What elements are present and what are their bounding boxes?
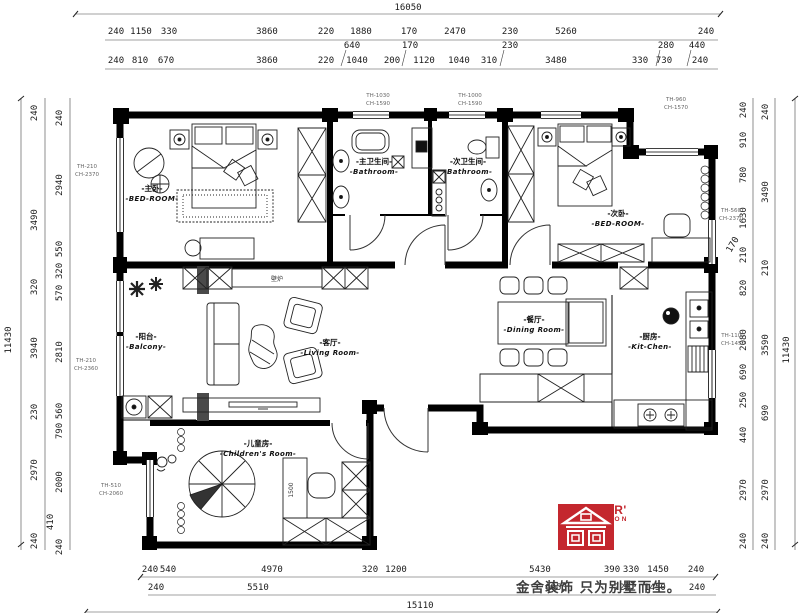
children-room-door <box>332 423 368 459</box>
dim-label: 220 <box>318 56 334 66</box>
annotation: CH-1450 <box>721 341 745 347</box>
dim-label: 730 <box>656 56 672 66</box>
dim-label: 2470 <box>444 27 466 37</box>
dim-label: 240 <box>55 539 65 555</box>
counter <box>480 374 612 402</box>
dim-label: 240 <box>108 56 124 66</box>
dim-label: 240 <box>739 533 749 549</box>
chair <box>500 349 519 366</box>
label-balcony-cn: -阳台- <box>135 331 156 341</box>
toy <box>157 457 167 467</box>
dim-label: 440 <box>739 427 749 443</box>
master-bedroom-furniture <box>134 124 326 259</box>
dim-label: 3590 <box>761 334 771 356</box>
window <box>116 336 124 396</box>
annotation: TH-1100 <box>720 333 745 339</box>
dim-label: 2970 <box>761 479 771 501</box>
kingser-logo-mark <box>558 504 614 550</box>
dim-label: 3480 <box>545 56 567 66</box>
pillow <box>195 127 222 144</box>
dim-label: 1880 <box>350 27 372 37</box>
radiator <box>688 346 708 372</box>
dim-label: 200 <box>384 56 400 66</box>
label-second-bath-cn: -次卫生间- <box>450 156 486 166</box>
dim-label: 1200 <box>385 565 407 575</box>
wardrobe <box>298 128 326 222</box>
window <box>116 138 124 232</box>
window <box>646 148 698 156</box>
tv <box>229 402 297 407</box>
annotation: CH-1590 <box>458 101 482 107</box>
label-kitchen-cn: -厨房- <box>639 331 660 341</box>
desk-chair <box>308 473 335 498</box>
dim-label: 3490 <box>761 181 771 203</box>
label-master-bedroom-en: -BED-ROOM- <box>125 195 178 203</box>
cabinet <box>283 518 370 545</box>
dim-label: 240 <box>698 27 714 37</box>
label-master-bath-cn: -主卫生间- <box>356 156 392 166</box>
annotation: CH-2370 <box>75 172 99 178</box>
annotation: TH-510 <box>100 483 121 489</box>
dim-label: 210 <box>761 260 771 276</box>
dim-label: 2000 <box>55 471 65 493</box>
cabinet <box>620 267 648 289</box>
throw-pillow <box>573 169 593 189</box>
duct <box>392 156 404 168</box>
armchair <box>283 296 323 334</box>
dim-label: 310 <box>481 56 497 66</box>
dim-label: 670 <box>158 56 174 66</box>
sideboard <box>566 299 606 346</box>
annotation: CH-2060 <box>99 491 123 497</box>
annotation: TH-1030 <box>365 93 390 99</box>
annotation: CH-2360 <box>74 366 98 372</box>
dims-top: 16050 240 1150 330 3860 220 1880 170 247… <box>108 3 714 66</box>
dim-label: 790 <box>55 423 65 439</box>
dim-label: 240 <box>689 583 705 593</box>
window <box>449 111 485 119</box>
duct <box>432 170 446 216</box>
dim-label: 1040 <box>448 56 470 66</box>
dim-label: 240 <box>30 105 40 121</box>
desk-chair <box>664 214 690 237</box>
annotation: TH-210 <box>76 164 97 170</box>
figure <box>663 308 679 324</box>
dim-label: 1040 <box>346 56 368 66</box>
dim-label: 320 <box>30 279 40 295</box>
label-living-room-en: -Living Room- <box>300 349 359 357</box>
logo-slogan: 金舍装饰 只为别墅而生。 <box>516 576 681 596</box>
chair <box>524 277 543 294</box>
dim-label: 250 <box>739 392 749 408</box>
second-bedroom-furniture <box>508 124 710 262</box>
dim-label: 560 <box>55 403 65 419</box>
dim-label: 780 <box>739 167 749 183</box>
dim-label: 11430 <box>782 336 792 363</box>
kingser-logo: KINGSER' DECORATION <box>558 504 634 524</box>
plant <box>129 281 145 297</box>
dim-label: 230 <box>502 27 518 37</box>
desk-width-label: 1500 <box>288 482 295 497</box>
windows <box>116 111 716 517</box>
dim-label: 550 <box>55 241 65 257</box>
annotation: CH-1590 <box>366 101 390 107</box>
entry-door-gap <box>384 403 428 413</box>
dim-label: 240 <box>761 104 771 120</box>
dim-label: 240 <box>148 583 164 593</box>
dim-label: 570 <box>55 285 65 301</box>
throw-pillow <box>238 166 258 186</box>
dim-label: 220 <box>318 27 334 37</box>
cabinet <box>342 462 370 518</box>
dim-label: 240 <box>55 110 65 126</box>
entry-door <box>384 408 428 452</box>
dim-label: 230 <box>30 404 40 420</box>
wardrobe <box>508 126 534 222</box>
label-living-room-cn: -客厅- <box>319 337 340 347</box>
dim-label: 3860 <box>256 27 278 37</box>
floor-plan-canvas: 16050 240 1150 330 3860 220 1880 170 247… <box>0 0 800 613</box>
window <box>541 111 581 119</box>
label-second-bedroom-cn: -次卧- <box>607 208 628 218</box>
dim-label: 540 <box>160 565 176 575</box>
dim-label: 1450 <box>647 565 669 575</box>
label-children-room-en: -Children's Room- <box>220 450 296 458</box>
dim-label: 1120 <box>413 56 435 66</box>
label-second-bedroom-en: -BED-ROOM- <box>591 220 644 228</box>
dim-label: 2970 <box>739 479 749 501</box>
pillow <box>560 126 584 142</box>
dim-label: 3490 <box>30 209 40 231</box>
tent-shade <box>190 484 222 509</box>
dim-label: 280 <box>658 41 674 51</box>
dim-label: 170 <box>402 41 418 51</box>
dim-label: 5510 <box>247 583 269 593</box>
annotation: TH-960 <box>665 97 686 103</box>
dim-label: 330 <box>161 27 177 37</box>
dim-label: 3940 <box>30 337 40 359</box>
dim-label: 240 <box>142 565 158 575</box>
dim-label: 1150 <box>130 27 152 37</box>
annotation: CH-2370 <box>719 216 743 222</box>
desk <box>652 238 710 262</box>
cabinet <box>558 244 644 262</box>
annotation: TH-1000 <box>457 93 482 99</box>
dim-label: 5430 <box>529 565 551 575</box>
dim-label: 240 <box>688 565 704 575</box>
label-master-bath-en: -Bathroom- <box>350 168 399 176</box>
label-children-room-cn: -儿童房- <box>244 438 273 448</box>
master-bedroom-door <box>405 225 445 265</box>
cabinet <box>148 396 172 418</box>
dim-label: 330 <box>623 565 639 575</box>
label-kitchen-en: -Kit-Chen- <box>628 343 672 351</box>
dim-label: 240 <box>692 56 708 66</box>
dim-label: 330 <box>632 56 648 66</box>
dim-label: 230 <box>502 41 518 51</box>
master-bath-door <box>350 215 385 250</box>
doors <box>332 215 550 459</box>
dims-right: 11430 240 3490 210 3590 690 2970 240 240… <box>725 102 792 549</box>
dim-label: 4970 <box>261 565 283 575</box>
dim-label: 2940 <box>55 174 65 196</box>
dim-label: 910 <box>739 132 749 148</box>
cabinet <box>322 267 368 289</box>
bench <box>200 238 254 259</box>
dim-label: 440 <box>689 41 705 51</box>
dim-label: 640 <box>344 41 360 51</box>
label-dining-room-cn: -餐厅- <box>523 314 544 324</box>
dim-label: 11430 <box>4 326 14 353</box>
dim-label: 2810 <box>55 341 65 363</box>
label-master-bedroom-cn: -主卧- <box>141 183 162 193</box>
second-bath-door <box>448 215 483 250</box>
dim-label: 410 <box>46 514 56 530</box>
label-fireplace: 壁炉 <box>271 275 283 283</box>
annotation: CH-1570 <box>664 105 688 111</box>
label-balcony-en: -Balcony- <box>126 343 166 351</box>
dining-room-furniture <box>480 277 612 402</box>
floor-plan-drawing: 16050 240 1150 330 3860 220 1880 170 247… <box>0 0 800 613</box>
dim-label: 320 <box>55 263 65 279</box>
desk <box>283 458 307 518</box>
dim-label: 210 <box>739 247 749 263</box>
window <box>146 460 154 517</box>
toilet <box>468 140 486 154</box>
dim-label: 15110 <box>406 601 433 611</box>
dim-label: 240 <box>108 27 124 37</box>
label-second-bath-en: -Bathroom- <box>444 168 493 176</box>
dim-label: 5260 <box>555 27 577 37</box>
furniture <box>122 124 712 545</box>
dim-label: 240 <box>739 102 749 118</box>
dim-label: 320 <box>362 565 378 575</box>
dim-label: 390 <box>604 565 620 575</box>
chair <box>548 349 567 366</box>
dim-label: 240 <box>30 533 40 549</box>
dim-label: 810 <box>132 56 148 66</box>
dim-label: 690 <box>761 405 771 421</box>
throw-pillow <box>587 176 607 196</box>
chair <box>500 277 519 294</box>
toilet-tank <box>486 137 499 158</box>
window <box>708 220 716 264</box>
balcony-post <box>197 393 209 421</box>
dim-label: 2970 <box>30 459 40 481</box>
dim-label: 820 <box>739 280 749 296</box>
chair <box>524 349 543 366</box>
pillow <box>587 126 611 142</box>
pillow <box>226 127 253 144</box>
label-dining-room-en: -Dining Room- <box>504 326 565 334</box>
dim-label: 170 <box>401 27 417 37</box>
dim-label: 3860 <box>256 56 278 66</box>
window <box>353 111 389 119</box>
dim-label: 690 <box>739 364 749 380</box>
annotation: TH-560 <box>720 208 741 214</box>
dims-left: 11430 240 3490 320 3940 230 2970 240 410… <box>4 105 65 555</box>
annotation: TH-210 <box>75 358 96 364</box>
plant <box>149 277 163 291</box>
window <box>116 281 124 332</box>
dim-label: 16050 <box>394 3 421 13</box>
dim-label: 240 <box>761 533 771 549</box>
chair <box>548 277 567 294</box>
second-bedroom-door <box>510 225 550 265</box>
